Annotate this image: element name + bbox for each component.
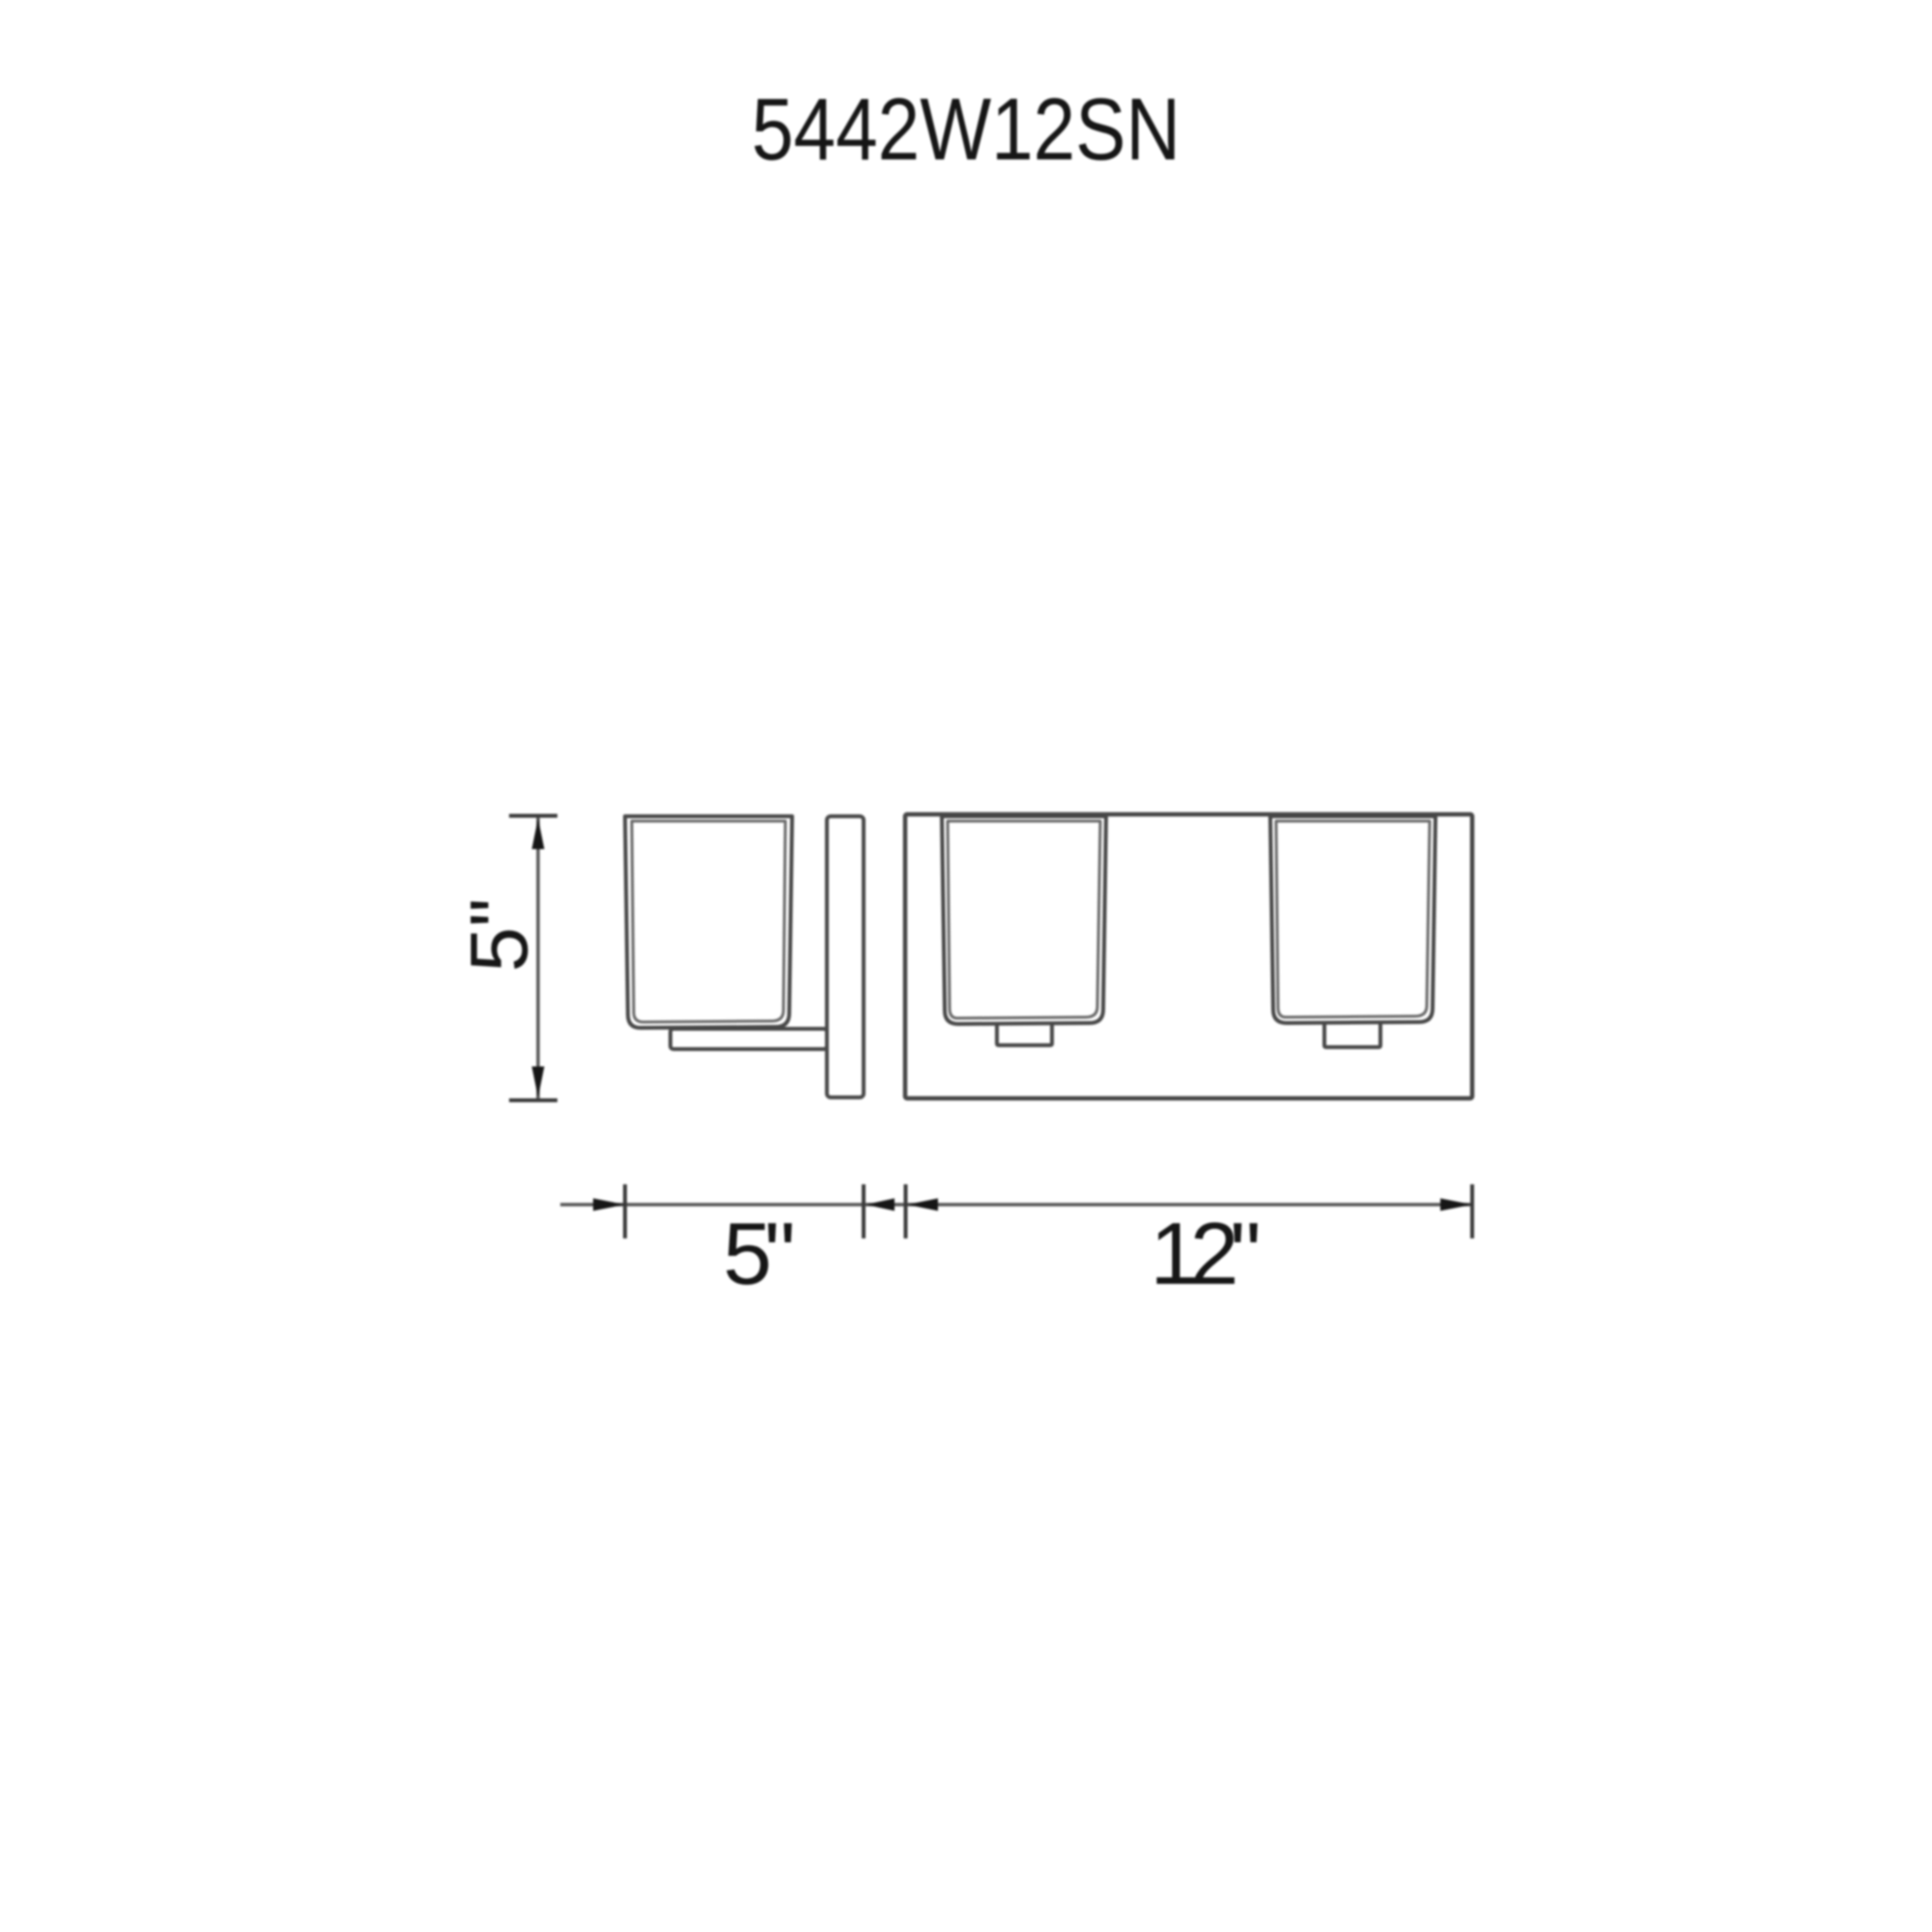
svg-text:12": 12" [1151,1206,1262,1303]
svg-text:5": 5" [724,1206,796,1303]
svg-text:5": 5" [454,898,545,973]
svg-text:5442W12SN: 5442W12SN [752,81,1180,179]
